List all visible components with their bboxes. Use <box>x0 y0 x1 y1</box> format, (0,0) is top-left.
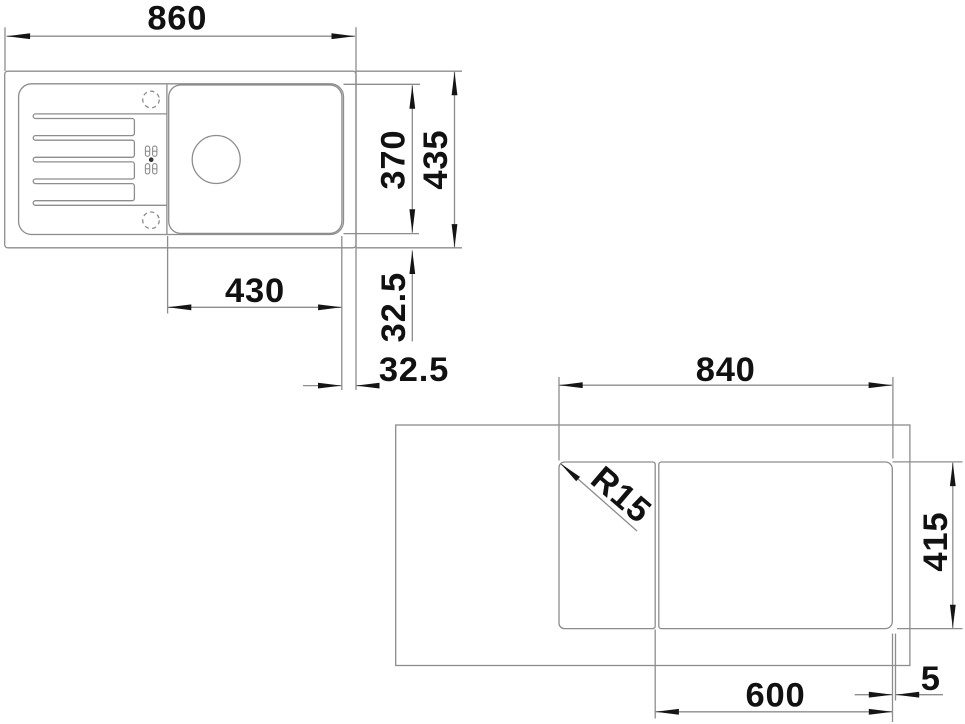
svg-text:370: 370 <box>374 130 412 190</box>
svg-text:435: 435 <box>417 130 455 190</box>
svg-text:415: 415 <box>917 512 955 572</box>
svg-text:R15: R15 <box>584 459 659 531</box>
svg-text:5: 5 <box>921 660 941 698</box>
svg-text:840: 840 <box>696 351 756 389</box>
svg-text:600: 600 <box>746 677 806 715</box>
svg-text:430: 430 <box>225 272 285 310</box>
svg-text:32.5: 32.5 <box>375 272 413 342</box>
svg-text:32.5: 32.5 <box>379 351 449 389</box>
svg-text:860: 860 <box>147 0 207 38</box>
